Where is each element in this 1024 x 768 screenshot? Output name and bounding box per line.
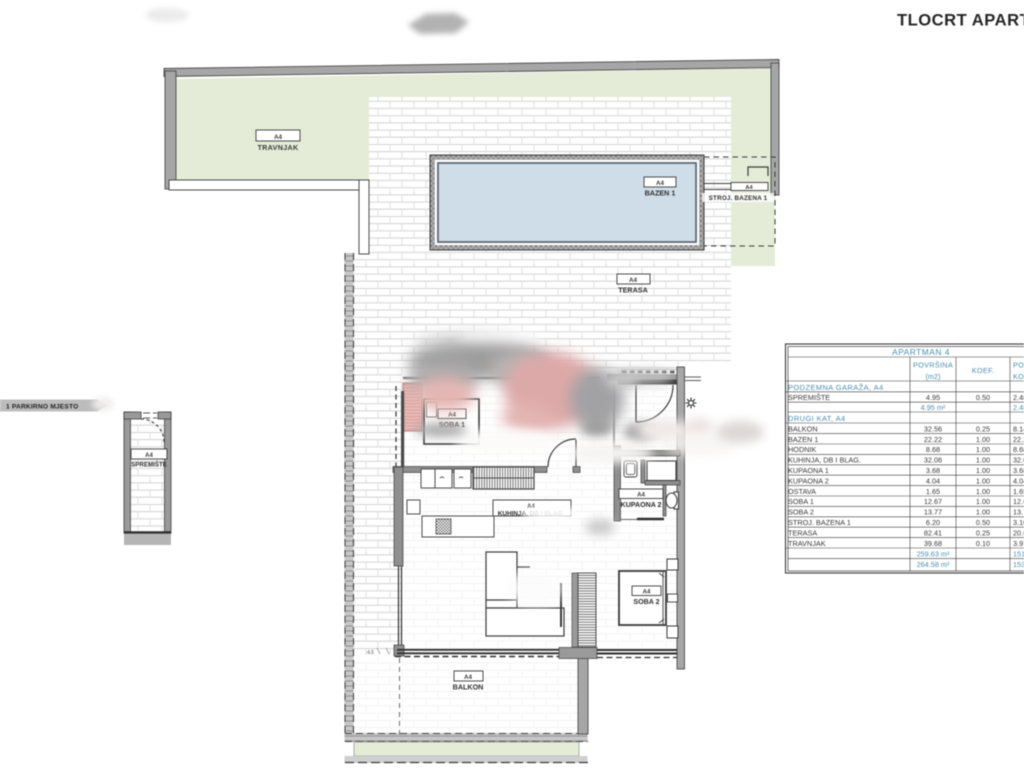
svg-text:1.00: 1.00 xyxy=(976,508,990,517)
svg-text:0.50: 0.50 xyxy=(976,518,990,527)
svg-text:8.14: 8.14 xyxy=(1013,424,1024,433)
svg-text:A4: A4 xyxy=(643,589,651,596)
svg-text:STROJ. BAZENA 1: STROJ. BAZENA 1 xyxy=(709,195,768,202)
svg-text:1.00: 1.00 xyxy=(976,476,990,485)
svg-text:KOEF.: KOEF. xyxy=(1013,372,1024,381)
svg-text:20.60: 20.60 xyxy=(1013,528,1024,537)
svg-text:1.00: 1.00 xyxy=(976,466,990,475)
svg-text:KUPAONA 1: KUPAONA 1 xyxy=(788,466,829,475)
svg-text:DRUGI KAT, A4: DRUGI KAT, A4 xyxy=(788,414,846,423)
svg-text:8.68: 8.68 xyxy=(926,445,940,454)
svg-text:TERASA: TERASA xyxy=(788,528,817,537)
svg-text:0.25: 0.25 xyxy=(976,528,990,537)
svg-text:153.63 m²: 153.63 m² xyxy=(1013,560,1024,569)
svg-text:32.56: 32.56 xyxy=(924,424,942,433)
svg-text:STROJ. BAZENA 1: STROJ. BAZENA 1 xyxy=(788,518,851,527)
svg-text:151.15 m²: 151.15 m² xyxy=(1013,549,1024,558)
svg-text:A4: A4 xyxy=(464,674,472,681)
svg-text:2.48: 2.48 xyxy=(1013,403,1024,412)
svg-text:A4: A4 xyxy=(656,180,664,187)
svg-text:TERASA: TERASA xyxy=(618,286,648,295)
svg-text:BALKON: BALKON xyxy=(788,424,818,433)
svg-text:4.04: 4.04 xyxy=(926,476,940,485)
svg-text:A4: A4 xyxy=(629,277,637,284)
svg-text:SPREMIŠTE: SPREMIŠTE xyxy=(131,461,167,469)
svg-text:4.04: 4.04 xyxy=(1013,476,1024,485)
svg-text:1 PARKIRNO MJESTO: 1 PARKIRNO MJESTO xyxy=(6,404,78,411)
svg-text:3.68: 3.68 xyxy=(1013,466,1024,475)
svg-text:0.50: 0.50 xyxy=(976,393,990,402)
svg-text:4.95: 4.95 xyxy=(926,393,940,402)
svg-text:APARTMAN 4: APARTMAN 4 xyxy=(892,347,950,357)
svg-text:(m2): (m2) xyxy=(926,372,941,381)
svg-text:6.20: 6.20 xyxy=(926,518,940,527)
svg-text:13.77: 13.77 xyxy=(1013,508,1024,517)
svg-text:1.65: 1.65 xyxy=(1013,487,1024,496)
svg-text:SOBA 2: SOBA 2 xyxy=(788,508,814,517)
svg-text:1.00: 1.00 xyxy=(976,497,990,506)
svg-text:22.22: 22.22 xyxy=(924,435,942,444)
svg-text:1.00: 1.00 xyxy=(976,435,990,444)
svg-text:32.06: 32.06 xyxy=(924,456,942,465)
svg-text:SPREMIŠTE: SPREMIŠTE xyxy=(788,393,830,402)
svg-text:TRAVNJAK: TRAVNJAK xyxy=(788,539,826,548)
svg-text:SOBA 1: SOBA 1 xyxy=(788,497,814,506)
svg-text:A4: A4 xyxy=(745,185,753,191)
svg-text:3.68: 3.68 xyxy=(926,466,940,475)
svg-text:TLOCRT APARTMANA 4: TLOCRT APARTMANA 4 xyxy=(897,11,1024,30)
svg-text:TRAVNJAK: TRAVNJAK xyxy=(257,143,299,152)
svg-text:A4: A4 xyxy=(637,492,645,499)
svg-text:259.63 m²: 259.63 m² xyxy=(917,549,950,558)
svg-text:1.00: 1.00 xyxy=(976,445,990,454)
svg-text:SOBA 2: SOBA 2 xyxy=(633,598,659,606)
svg-text:OSTAVA: OSTAVA xyxy=(788,487,816,496)
svg-text:1.00: 1.00 xyxy=(976,487,990,496)
svg-text:KUHINJA, DB I BLAG.: KUHINJA, DB I BLAG. xyxy=(788,456,861,465)
svg-text:POVRŠINA: POVRŠINA xyxy=(1013,361,1024,370)
svg-text:1.65: 1.65 xyxy=(926,487,940,496)
svg-text:A4: A4 xyxy=(145,453,153,459)
svg-text:3.97: 3.97 xyxy=(1013,539,1024,548)
svg-text:12.67: 12.67 xyxy=(1013,497,1024,506)
svg-text:KUPAONA 2: KUPAONA 2 xyxy=(788,476,829,485)
svg-text:POVRŠINA: POVRŠINA xyxy=(913,361,953,370)
svg-text:KUPAONA 2: KUPAONA 2 xyxy=(621,501,662,509)
svg-text:1.00: 1.00 xyxy=(976,456,990,465)
svg-text:4.5: 4.5 xyxy=(367,650,374,656)
svg-text:22.22: 22.22 xyxy=(1013,435,1024,444)
svg-text:264.58 m²: 264.58 m² xyxy=(917,560,950,569)
svg-text:BAZEN 1: BAZEN 1 xyxy=(788,435,818,444)
svg-text:12.67: 12.67 xyxy=(924,497,942,506)
svg-text:PODZEMNA GARAŽA, A4: PODZEMNA GARAŽA, A4 xyxy=(788,383,884,392)
svg-text:KOEF.: KOEF. xyxy=(972,366,995,375)
svg-text:0.10: 0.10 xyxy=(976,539,990,548)
svg-text:39.68: 39.68 xyxy=(924,539,942,548)
svg-text:13.77: 13.77 xyxy=(924,508,942,517)
svg-text:3.10: 3.10 xyxy=(1013,518,1024,527)
svg-text:32.06: 32.06 xyxy=(1013,456,1024,465)
svg-text:8.68: 8.68 xyxy=(1013,445,1024,454)
svg-text:BALKON: BALKON xyxy=(453,683,484,692)
svg-text:2.48: 2.48 xyxy=(1013,393,1024,402)
svg-text:82.41: 82.41 xyxy=(924,528,942,537)
svg-text:A4: A4 xyxy=(448,412,456,419)
svg-text:A4: A4 xyxy=(274,134,282,141)
svg-text:BAZEN 1: BAZEN 1 xyxy=(645,189,676,198)
svg-text:0.25: 0.25 xyxy=(976,424,990,433)
svg-text:HODNIK: HODNIK xyxy=(788,445,817,454)
svg-text:4.95 m²: 4.95 m² xyxy=(921,403,946,412)
